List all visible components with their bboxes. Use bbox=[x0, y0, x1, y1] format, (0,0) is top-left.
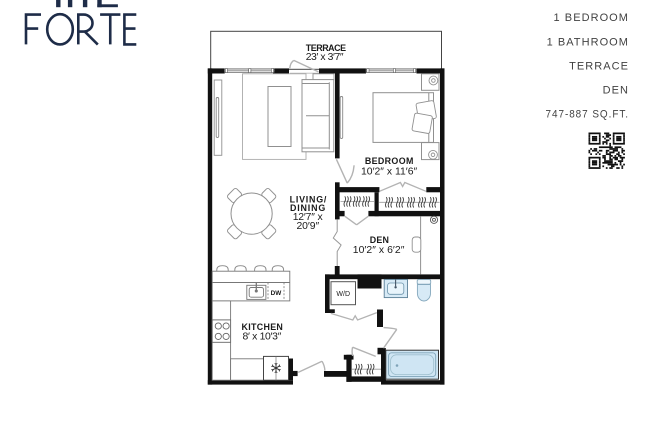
svg-text:BEDROOM: BEDROOM bbox=[365, 156, 414, 166]
svg-text:20′9″: 20′9″ bbox=[296, 221, 319, 232]
svg-text:1 BEDROOM: 1 BEDROOM bbox=[554, 12, 629, 24]
svg-text:10′2″ x 6′2″: 10′2″ x 6′2″ bbox=[353, 245, 405, 256]
svg-text:23′ x 3′7″: 23′ x 3′7″ bbox=[306, 52, 344, 63]
svg-text:KITCHEN: KITCHEN bbox=[242, 322, 283, 332]
svg-text:W/D: W/D bbox=[336, 291, 350, 298]
svg-text:DW: DW bbox=[271, 290, 283, 297]
svg-text:8′ x 10′3″: 8′ x 10′3″ bbox=[243, 332, 282, 343]
svg-text:TERRACE: TERRACE bbox=[569, 60, 629, 72]
svg-text:10′2″ x 11′6″: 10′2″ x 11′6″ bbox=[361, 167, 418, 178]
svg-text:DEN: DEN bbox=[370, 235, 389, 245]
svg-text:DEN: DEN bbox=[603, 84, 629, 96]
svg-text:747-887 SQ.FT.: 747-887 SQ.FT. bbox=[546, 108, 630, 120]
svg-text:1 BATHROOM: 1 BATHROOM bbox=[547, 36, 629, 48]
